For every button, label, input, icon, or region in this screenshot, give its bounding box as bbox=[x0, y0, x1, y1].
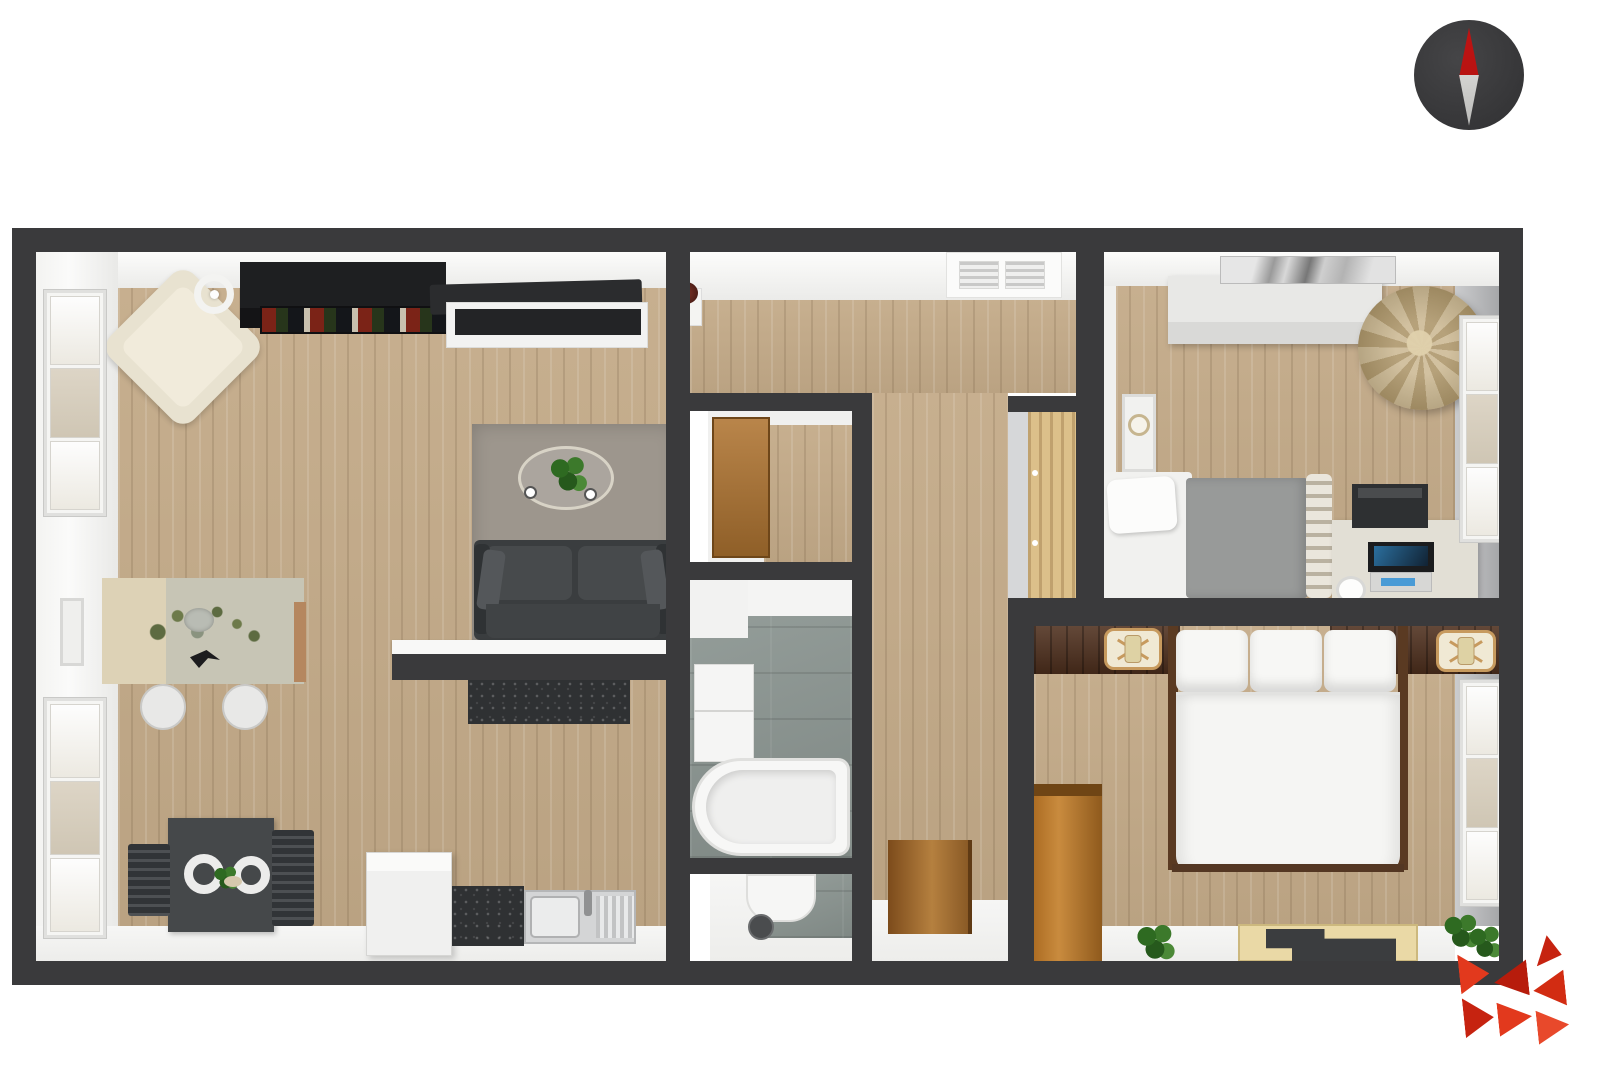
tray-cloth bbox=[1266, 929, 1396, 961]
closet-wooden-door bbox=[712, 417, 770, 558]
sink-basin bbox=[530, 896, 580, 938]
pillow-3 bbox=[1324, 630, 1396, 692]
sofa-seat-front bbox=[486, 604, 660, 638]
laptop-display bbox=[1374, 546, 1428, 566]
hall-wardrobe-front bbox=[1028, 412, 1076, 606]
bedroom2-window bbox=[1460, 680, 1504, 906]
console-desk-edge bbox=[294, 602, 306, 682]
wardrobe-top-edge bbox=[1030, 784, 1102, 796]
printer bbox=[1352, 484, 1428, 528]
sink-drainboard bbox=[596, 896, 634, 938]
closet-wood-floor bbox=[764, 425, 852, 562]
corridor-wood-floor bbox=[872, 393, 1008, 900]
art-print bbox=[1220, 256, 1396, 284]
table-lamp-left bbox=[1104, 628, 1162, 670]
bed-footboard bbox=[1172, 864, 1404, 872]
single-bed-pillow bbox=[1106, 476, 1178, 535]
floor-plan-render bbox=[0, 0, 1598, 1065]
plant-small bbox=[1130, 918, 1178, 964]
pillow-1 bbox=[1176, 630, 1248, 692]
flower-vase bbox=[184, 608, 214, 632]
dining-chair-right bbox=[272, 830, 314, 926]
sink-faucet bbox=[584, 890, 592, 916]
single-bed-blanket bbox=[1186, 478, 1308, 598]
coffee-table-plant bbox=[544, 450, 590, 496]
refrigerator-top-face bbox=[367, 853, 451, 871]
wall-wc-top bbox=[690, 858, 872, 874]
outer-wall-bottom bbox=[12, 961, 1523, 985]
logo-shard-3 bbox=[1492, 959, 1530, 998]
desk-chair-right bbox=[222, 684, 268, 730]
laptop-keyboard bbox=[1370, 572, 1432, 592]
logo-shard-5 bbox=[1531, 970, 1567, 1009]
laptop-screen bbox=[1368, 542, 1434, 572]
wall-closet-top bbox=[690, 393, 872, 411]
logo-shard-7 bbox=[1534, 934, 1563, 967]
wall-bedroom2-left bbox=[1008, 626, 1034, 961]
breakfast-bar-granite bbox=[468, 680, 630, 724]
dresser-front bbox=[1168, 322, 1382, 344]
vent-grille-right bbox=[1005, 261, 1045, 289]
wall-clock bbox=[1128, 414, 1150, 436]
coffee-cup-right bbox=[584, 488, 597, 501]
printer-top bbox=[1358, 488, 1422, 498]
tv-stand bbox=[446, 302, 648, 348]
floor-tray bbox=[1238, 924, 1418, 962]
logo-shard-2 bbox=[1462, 995, 1496, 1038]
entry-door bbox=[888, 840, 972, 934]
breakfast-bar-top bbox=[392, 640, 670, 654]
floor-lamp-bulb bbox=[210, 290, 219, 299]
bedroom2-wardrobe bbox=[1030, 784, 1102, 962]
tv-stand-shelf bbox=[455, 309, 641, 335]
wall-closet-right bbox=[852, 393, 872, 580]
hall-wood-floor bbox=[690, 300, 1076, 393]
speaker-box bbox=[240, 308, 260, 328]
bathtub-basin bbox=[706, 770, 836, 844]
vanity-cabinet bbox=[694, 664, 754, 762]
double-bed-duvet bbox=[1176, 692, 1400, 872]
bookshelf bbox=[240, 262, 446, 310]
brand-logo bbox=[1441, 923, 1598, 1065]
wall-hall-bedroom1 bbox=[1076, 228, 1104, 624]
living-window-bottom bbox=[44, 698, 106, 938]
logo-shard-6 bbox=[1535, 1007, 1570, 1044]
bathroom-shelf bbox=[748, 580, 852, 616]
wall-bedroom-divider bbox=[1008, 598, 1523, 626]
coffee-cup-left bbox=[524, 486, 537, 499]
hall-wardrobe-side bbox=[1008, 412, 1028, 606]
desk-chair-left bbox=[140, 684, 186, 730]
shower-tray bbox=[690, 580, 748, 638]
logo-shard-1 bbox=[1457, 952, 1491, 995]
wall-living-hall bbox=[666, 252, 690, 963]
pillow-2 bbox=[1250, 630, 1322, 692]
wardrobe-handle-top bbox=[1032, 470, 1038, 476]
wardrobe-handle-bottom bbox=[1032, 540, 1038, 546]
wall-bath-top bbox=[690, 562, 872, 580]
breakfast-bar-wall bbox=[392, 654, 670, 680]
dresser bbox=[1168, 276, 1382, 344]
living-window-top bbox=[44, 290, 106, 516]
laptop-sticker bbox=[1381, 578, 1415, 586]
outer-wall-left bbox=[12, 228, 36, 985]
outer-wall-top bbox=[12, 228, 1523, 252]
dining-chair-left bbox=[128, 844, 170, 916]
kitchen-counter-granite bbox=[452, 886, 524, 946]
spindle-headboard bbox=[1306, 474, 1332, 598]
vanity-divider bbox=[694, 710, 754, 712]
picture-frame bbox=[60, 598, 84, 666]
floor-drain bbox=[748, 914, 774, 940]
bookshelf-books bbox=[262, 308, 446, 332]
table-dish bbox=[224, 876, 242, 887]
logo-shard-4 bbox=[1496, 999, 1533, 1036]
table-lamp-right bbox=[1436, 630, 1496, 672]
refrigerator bbox=[366, 852, 452, 956]
vent-grille-left bbox=[959, 261, 999, 289]
ceiling-vent bbox=[946, 252, 1062, 298]
bedroom1-window bbox=[1460, 316, 1504, 542]
wall-wc-right bbox=[852, 858, 872, 961]
wall-bath-right bbox=[852, 562, 872, 860]
